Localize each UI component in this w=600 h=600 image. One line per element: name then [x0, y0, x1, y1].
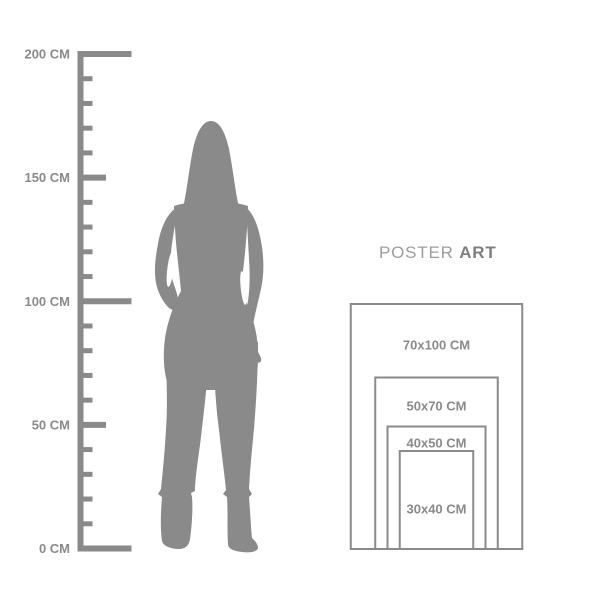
ruler-tick-30cm — [78, 472, 93, 477]
ruler-tick-10cm — [78, 521, 93, 526]
ruler-tick-0cm — [78, 546, 132, 552]
size-guide-canvas: 200 CM150 CM100 CM50 CM0 CM 70x100 CM50x… — [0, 0, 600, 600]
ruler-tick-110cm — [78, 274, 93, 279]
ruler-tick-90cm — [78, 323, 93, 328]
poster-size-chart: 70x100 CM50x70 CM40x50 CM30x40 CM — [351, 304, 523, 549]
brand-title-bold: ART — [459, 243, 496, 262]
height-ruler: 200 CM150 CM100 CM50 CM0 CM — [24, 47, 131, 557]
brand-title: POSTER ART — [379, 243, 497, 263]
ruler-label-200cm: 200 CM — [24, 47, 70, 62]
poster-rect-30x40 — [400, 451, 474, 549]
ruler-tick-80cm — [78, 348, 93, 353]
ruler-label-0cm: 0 CM — [39, 541, 70, 556]
ruler-label-150cm: 150 CM — [24, 170, 70, 185]
ruler-tick-60cm — [78, 398, 93, 403]
ruler-label-50cm: 50 CM — [32, 417, 70, 432]
poster-label-40x50: 40x50 CM — [407, 435, 467, 450]
ruler-tick-50cm — [78, 422, 107, 428]
brand-title-regular: POSTER — [379, 243, 454, 262]
ruler-tick-70cm — [78, 373, 93, 378]
ruler-tick-20cm — [78, 497, 93, 502]
ruler-tick-100cm — [78, 298, 132, 304]
ruler-label-100cm: 100 CM — [24, 294, 70, 309]
figure-group — [155, 121, 263, 552]
ruler-tick-150cm — [78, 175, 107, 181]
ruler-tick-160cm — [78, 150, 93, 155]
ruler-tick-170cm — [78, 126, 93, 131]
poster-label-50x70: 50x70 CM — [407, 399, 467, 414]
ruler-tick-180cm — [78, 101, 93, 106]
ruler-tick-40cm — [78, 447, 93, 452]
ruler-tick-200cm — [78, 51, 132, 57]
poster-label-70x100: 70x100 CM — [403, 337, 470, 352]
poster-label-30x40: 30x40 CM — [407, 501, 467, 516]
ruler-tick-120cm — [78, 249, 93, 254]
woman-silhouette — [155, 121, 263, 552]
size-guide-graphic: 200 CM150 CM100 CM50 CM0 CM 70x100 CM50x… — [0, 0, 600, 600]
ruler-tick-190cm — [78, 76, 93, 81]
ruler-tick-130cm — [78, 225, 93, 230]
ruler-tick-140cm — [78, 200, 93, 205]
